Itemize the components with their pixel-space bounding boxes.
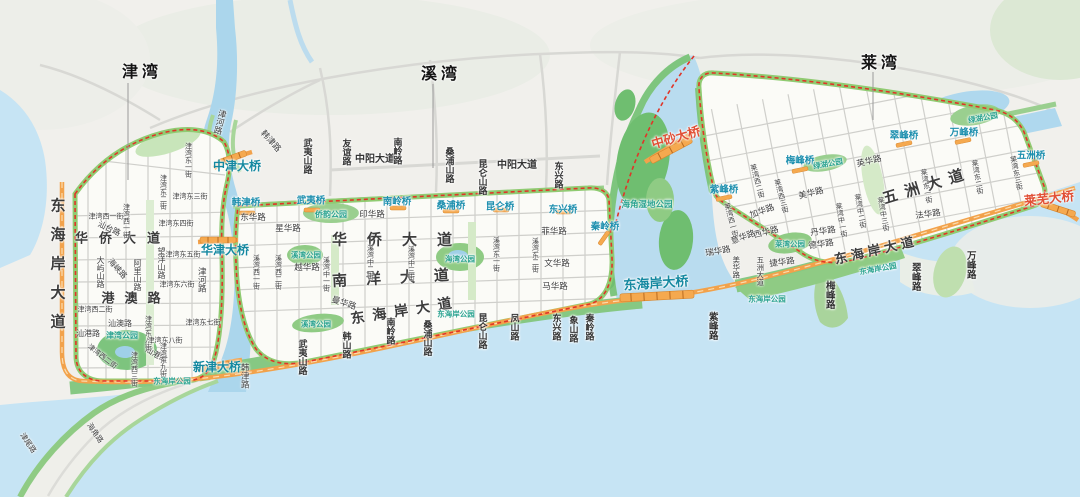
coastal-new-town-map: 津湾溪湾莱湾东海岸大道华侨大道港澳路华侨大道南洋大道东海岸大道五洲大道东海岸大道… [0, 0, 1080, 497]
basemap [0, 0, 1080, 497]
